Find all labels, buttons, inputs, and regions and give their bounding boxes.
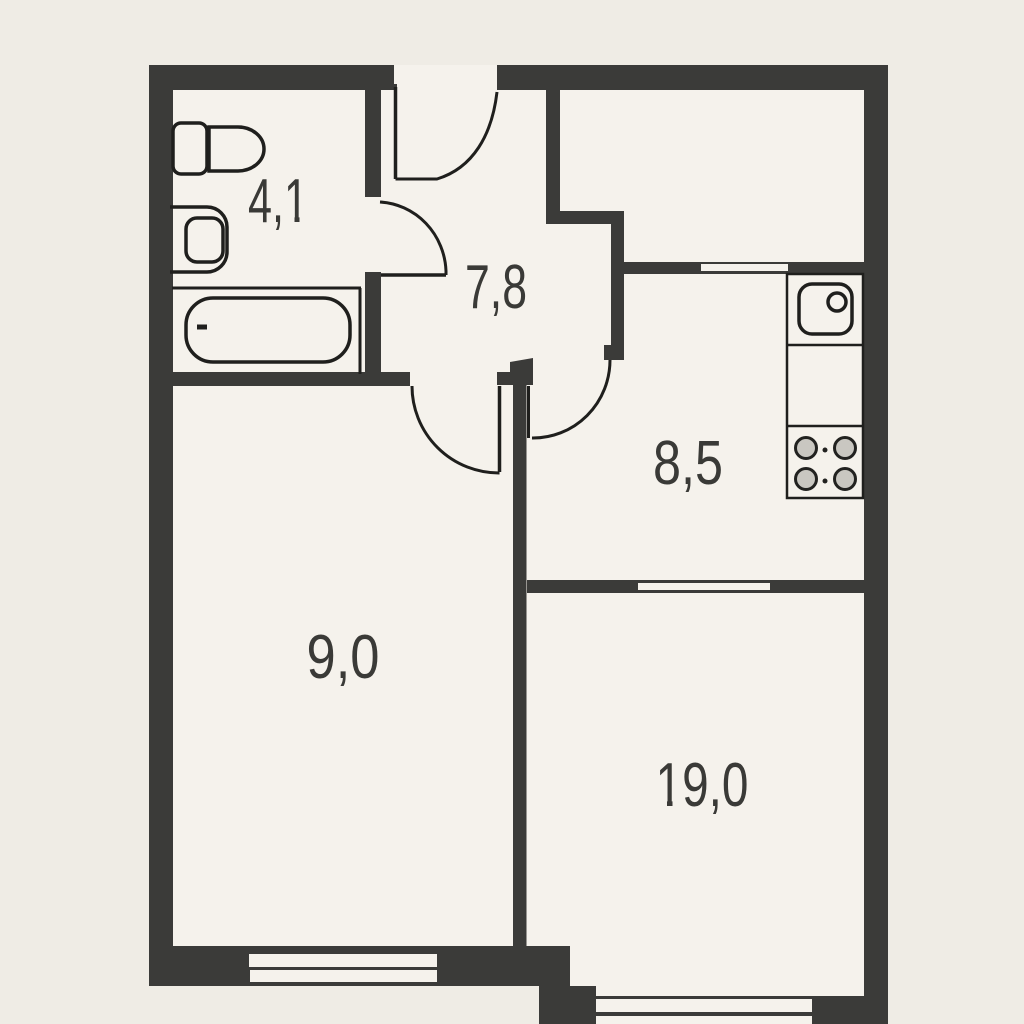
svg-text:7,8: 7,8 [465, 253, 527, 322]
svg-text:19,0: 19,0 [656, 751, 749, 820]
svg-text:4,1: 4,1 [248, 167, 308, 236]
svg-text:8,5: 8,5 [653, 429, 723, 498]
svg-text:9,0: 9,0 [307, 623, 380, 692]
